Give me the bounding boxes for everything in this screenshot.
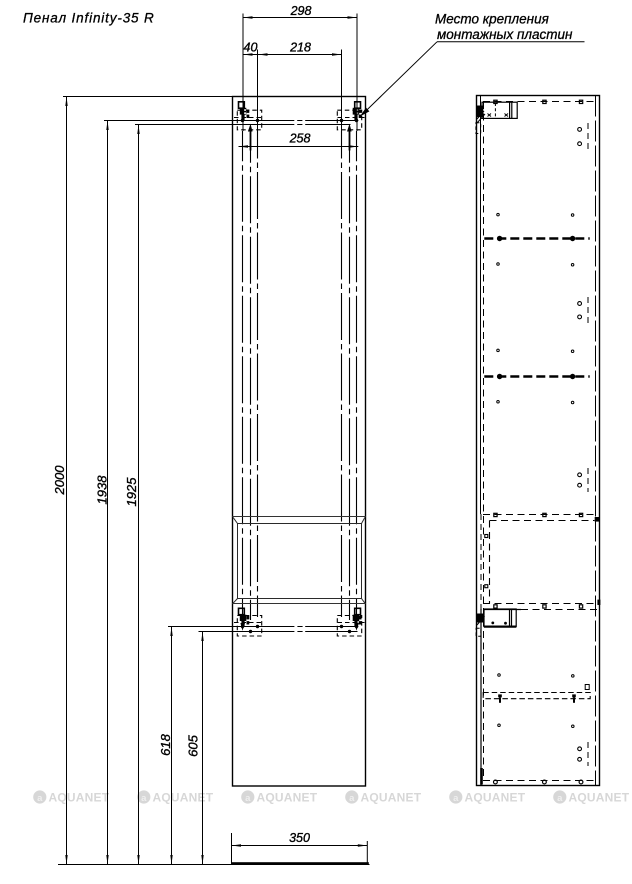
svg-text:a: a bbox=[349, 793, 355, 804]
svg-text:40: 40 bbox=[244, 40, 258, 54]
svg-text:2000: 2000 bbox=[52, 465, 67, 496]
svg-text:AQUANET: AQUANET bbox=[465, 791, 526, 805]
svg-text:Место крепления: Место крепления bbox=[435, 12, 549, 27]
svg-text:1938: 1938 bbox=[94, 475, 109, 505]
svg-text:350: 350 bbox=[289, 831, 310, 845]
svg-text:AQUANET: AQUANET bbox=[569, 791, 630, 805]
svg-text:a: a bbox=[141, 793, 147, 804]
svg-text:1925: 1925 bbox=[124, 477, 139, 507]
svg-text:AQUANET: AQUANET bbox=[257, 791, 318, 805]
svg-text:a: a bbox=[245, 793, 251, 804]
svg-text:218: 218 bbox=[289, 40, 311, 54]
svg-text:a: a bbox=[557, 793, 563, 804]
svg-text:AQUANET: AQUANET bbox=[153, 791, 214, 805]
svg-text:a: a bbox=[453, 793, 459, 804]
svg-text:AQUANET: AQUANET bbox=[49, 791, 110, 805]
svg-text:AQUANET: AQUANET bbox=[361, 791, 422, 805]
svg-text:a: a bbox=[37, 793, 43, 804]
svg-text:монтажных пластин: монтажных пластин bbox=[437, 27, 573, 42]
svg-text:605: 605 bbox=[186, 734, 201, 756]
svg-text:298: 298 bbox=[290, 4, 312, 18]
svg-text:618: 618 bbox=[158, 733, 173, 755]
svg-text:258: 258 bbox=[289, 132, 311, 146]
svg-text:Пенал Infinity-35 R: Пенал Infinity-35 R bbox=[23, 11, 155, 26]
